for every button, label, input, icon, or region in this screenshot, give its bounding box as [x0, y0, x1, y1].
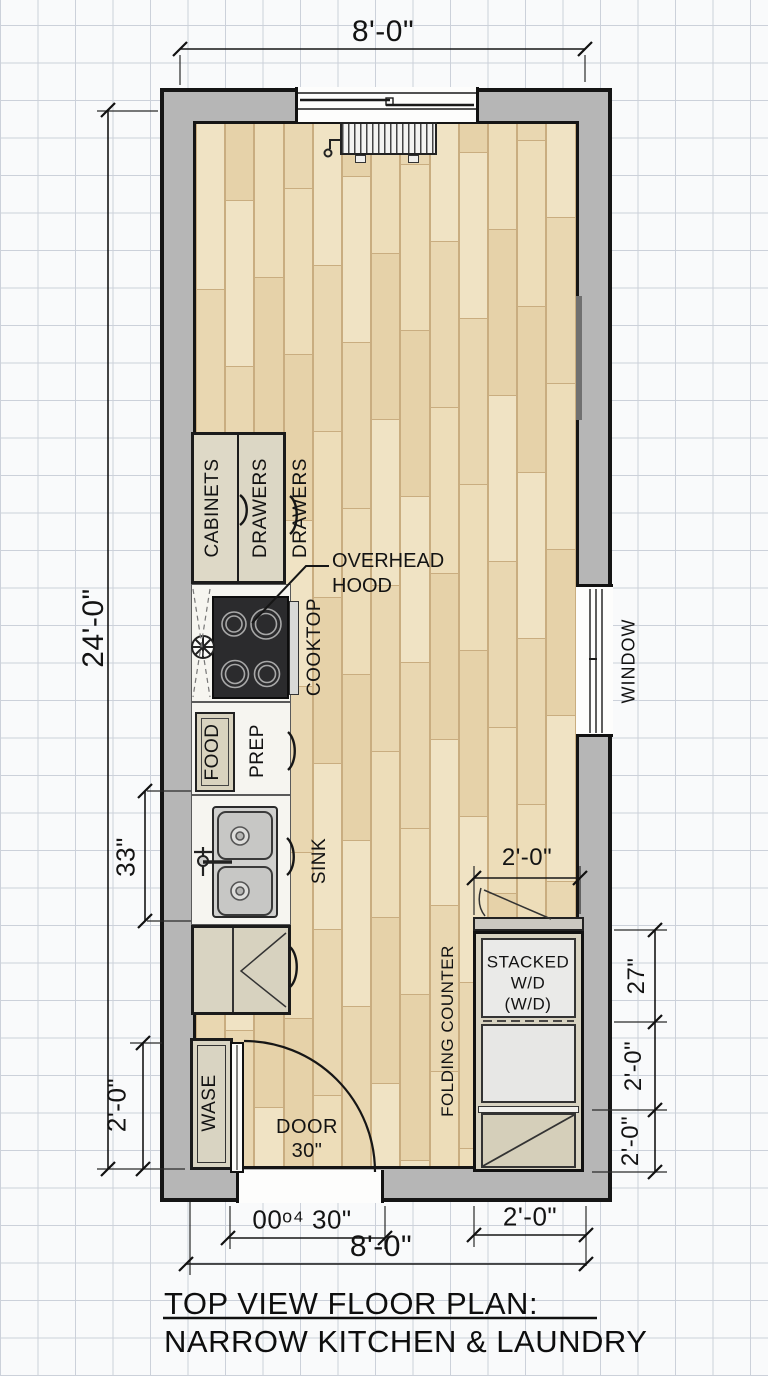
label-stacked-wd: STACKED W/D (W/D): [487, 952, 570, 1015]
floor-plank: [546, 218, 575, 384]
floor-plank: [342, 1007, 371, 1169]
floor-plank: [225, 201, 254, 367]
floor-plank: [546, 550, 575, 716]
dim-laundry-top: 2'-0": [502, 844, 552, 872]
floor-plank: [459, 319, 488, 485]
floor-plank: [400, 663, 429, 829]
label-cooktop: COOKTOP: [304, 598, 326, 696]
dishwasher-cabinet: [191, 925, 291, 1015]
folding-counter: [473, 917, 584, 931]
floor-plank: [400, 995, 429, 1161]
door-opening: [236, 1170, 384, 1203]
floor-plank: [400, 331, 429, 497]
floor-plank: [254, 278, 283, 444]
floor-plank: [225, 121, 254, 201]
label-folding-counter: FOLDING COUNTER: [438, 945, 458, 1117]
dim-sink-run: 33": [111, 837, 142, 877]
sink-basin-top: [217, 811, 273, 860]
dim-top-width: 8'-0": [352, 15, 414, 49]
floor-plank: [196, 124, 225, 290]
floor-plank: [342, 841, 371, 1007]
floor-plank: [400, 165, 429, 331]
sliding-window-opening: [295, 87, 479, 122]
floor-plank: [517, 141, 546, 307]
floor-plank: [371, 586, 400, 752]
label-window: WINDOW: [619, 619, 640, 704]
floor-plank: [313, 121, 342, 266]
floor-plank: [488, 230, 517, 396]
floor-plank: [254, 121, 283, 278]
label-sink: SINK: [309, 838, 331, 884]
radiator-leg: [408, 155, 419, 163]
floor-plank: [517, 639, 546, 805]
dim-left-height: 24'-0": [77, 588, 111, 667]
floor-plank: [371, 752, 400, 918]
floor-plank: [371, 1084, 400, 1169]
floor-plank: [488, 562, 517, 728]
dim-right-dryer: 2'-0": [620, 1041, 648, 1091]
label-drawers-floor: DRAWERS: [290, 458, 312, 558]
sink-basin-bottom: [217, 866, 273, 916]
radiator-leg: [355, 155, 366, 163]
entry-door-leaf: [230, 1042, 244, 1173]
cooktop-front-rail: [289, 601, 299, 695]
window-opening: [576, 584, 613, 737]
dim-right-cabinet: 2'-0": [617, 1116, 645, 1166]
label-drawers-cabinet: DRAWERS: [250, 458, 272, 558]
floor-plank: [284, 189, 313, 355]
label-prep: PREP: [247, 724, 269, 778]
floor-plank: [313, 266, 342, 432]
floor-plank: [488, 121, 517, 230]
label-waste: WASE: [199, 1074, 221, 1131]
floor-plank: [546, 384, 575, 550]
floor-plank: [342, 177, 371, 343]
label-overhead-hood: OVERHEAD HOOD: [332, 549, 444, 599]
floor-plank: [517, 473, 546, 639]
floor-plank: [459, 121, 488, 153]
dim-bottom-width: 8'-0": [350, 1230, 412, 1264]
floor-plank: [430, 242, 459, 408]
floor-plan-canvas: 8'-0" 24'-0" 33" 2'-0" 2'-0" 27" 2'-0" 2…: [0, 0, 768, 1376]
cabinet-panel: [194, 928, 234, 1012]
label-cabinets: CABINETS: [202, 458, 224, 557]
cooktop: [212, 596, 289, 699]
dryer-unit: [481, 1024, 576, 1103]
floor-plank: [459, 651, 488, 817]
floor-plank: [546, 121, 575, 218]
floor-plank: [459, 485, 488, 651]
wall-shadow: [576, 296, 582, 420]
floor-plank: [488, 396, 517, 562]
floor-plank: [517, 307, 546, 473]
floor-plank: [517, 121, 546, 141]
floor-plank: [459, 153, 488, 319]
dim-right-wd: 27": [623, 958, 651, 995]
label-food: FOOD: [202, 724, 224, 781]
dim-bottom-right: 2'-0": [503, 1202, 557, 1233]
floor-plank: [342, 343, 371, 509]
floor-plank: [371, 918, 400, 1084]
floor-plank: [430, 740, 459, 906]
floor-plank: [400, 829, 429, 995]
plan-title-line2: NARROW KITCHEN & LAUNDRY: [164, 1324, 647, 1360]
radiator: [340, 122, 437, 155]
floor-plank: [284, 121, 313, 189]
dim-door-bottom: 00ᵒ⁴ 30": [252, 1205, 351, 1236]
floor-plank: [371, 254, 400, 420]
plan-title-line1: TOP VIEW FLOOR PLAN:: [164, 1286, 538, 1322]
floor-plank: [400, 1161, 429, 1169]
dim-waste-left: 2'-0": [102, 1078, 133, 1132]
laundry-base-cabinet: [481, 1113, 576, 1168]
label-door: DOOR 30": [276, 1115, 338, 1163]
floor-plank: [313, 930, 342, 1096]
laundry-shelf: [478, 1106, 579, 1113]
floor-plank: [342, 675, 371, 841]
